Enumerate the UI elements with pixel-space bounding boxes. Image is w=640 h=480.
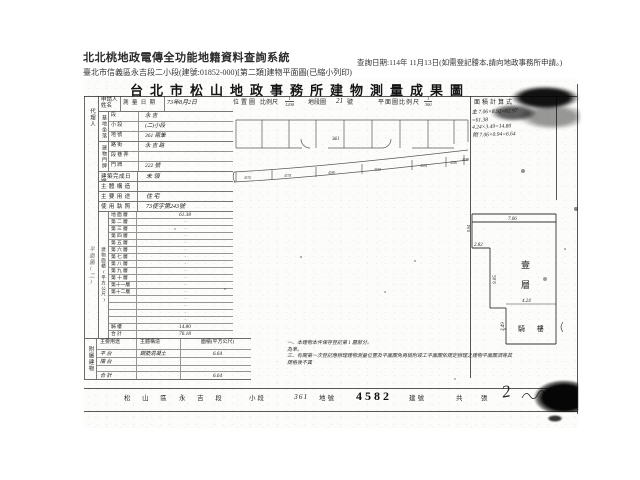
annex-use-value: 平 台 <box>97 350 137 357</box>
note-line: 規格後不異 <box>287 361 527 368</box>
floor-row: 第 二 層 · <box>109 219 233 226</box>
info-row-label: 主 要 用 途 <box>99 192 138 201</box>
floor-area-value: · <box>137 289 233 295</box>
map-building-no: 4586 <box>450 161 457 165</box>
floor-area-value: · <box>137 247 233 253</box>
info-row-label: 使 用 執 照 <box>99 202 138 211</box>
sheet-unit: 號 <box>347 97 353 106</box>
map-building-no: 4576 <box>244 176 251 180</box>
floor-area-value: · <box>137 275 233 281</box>
plan-dim-height: 9.05 <box>493 275 498 284</box>
map-building-no: 4584 <box>420 164 427 168</box>
address-row-value <box>139 152 233 161</box>
annex-row: 合 計 6.64 <box>97 372 251 379</box>
floor-row: 地 面 層 61.38 <box>109 212 233 219</box>
floor-row: · <box>109 303 233 310</box>
floor-area-value: · <box>137 233 233 239</box>
floor-label <box>109 303 137 309</box>
annex-area-value <box>181 358 251 365</box>
floor-label: 第 六 層 <box>109 247 137 253</box>
info-row-label: 主 體 構 造 <box>99 182 138 191</box>
site-row-label: 地 號 <box>109 132 139 141</box>
scan-smudge-bottom-right <box>534 380 578 412</box>
floor-area-value: · <box>137 268 233 274</box>
plan-scale-fraction: 1 300 <box>424 96 432 107</box>
plan-floor-label-1: 壹 <box>521 259 530 270</box>
annex-structure-header: 主體構造 <box>137 339 181 349</box>
site-rows: 段 永 吉 小 段 (二)小段 地 號 361 兩筆 <box>109 112 233 141</box>
address-group-label: 建物門牌 <box>99 142 109 171</box>
address-row-label: 路 街 <box>109 142 139 151</box>
floor-row: 第 四 層 · <box>109 233 233 240</box>
floor-row: 第 十 層 · <box>109 275 233 282</box>
plan-scale-label: 平面圖比例尺 <box>378 97 420 106</box>
annex-use-header: 主要用途 <box>97 339 137 349</box>
annex-header-row: 主要用途 主體構造 面積(平方公尺) <box>97 339 251 350</box>
floor-area-value: · <box>137 310 233 316</box>
document-subtitle: 臺北市信義區永吉段二小段(建號:01852-000)[第二類]建物平面圖(已縮小… <box>83 67 352 78</box>
site-row-value: 永 吉 <box>139 112 233 121</box>
map-parcel-number: 361 <box>332 137 340 142</box>
info-row-value <box>138 182 233 191</box>
floor-area-value: · <box>137 303 233 309</box>
footer-subsection-label: 小段 <box>249 392 266 402</box>
plan-scale-denominator: 300 <box>425 102 432 107</box>
floor-row: 第 五 層 · <box>109 240 233 247</box>
annex-structure-value <box>137 358 181 365</box>
applicant-label: 申請人姓名 <box>99 96 121 111</box>
survey-date-label: 測 量 日 期 <box>121 96 165 111</box>
footer-count-label: 共 張 <box>456 392 494 402</box>
address-row-value: 永 吉 路 <box>139 142 233 151</box>
note-line: 三、有關第一次登記應辦理建物測量位置及平面圖免再檢附竣工平面圖依規定辦理之建物平… <box>287 354 527 361</box>
floor-row: 第 八 層 · <box>109 261 233 268</box>
floor-label <box>109 317 137 323</box>
floor-row: 第 三 層 · <box>109 226 233 233</box>
survey-date-value: 73年8月2日 <box>165 96 233 111</box>
site-row: 段 永 吉 <box>109 112 233 122</box>
system-title: 北北桃地政電傳全功能地籍資料查詢系統 <box>83 49 290 65</box>
sheet-label: 地段圖 <box>308 97 326 106</box>
scanned-survey-document: 台北市松山地政事務所建物測量成果圖 代理人 平面圖(二) 申請人姓名 測 量 日… <box>84 78 578 428</box>
address-row: 段 巷 弄 <box>109 152 233 162</box>
info-row-value: 73使字第243號 <box>138 202 233 211</box>
footer-district: 松 山 區 <box>124 392 172 402</box>
annex-structure-value <box>137 372 181 379</box>
floor-label: 第十二層 <box>109 289 137 295</box>
floor-area-group: 建物面積(平方公尺) 地 面 層 61.38 第 二 層 · <box>99 212 233 338</box>
plan-dim-arcade-height: 3.49 <box>501 322 506 331</box>
floor-label: 合 計 <box>109 331 137 338</box>
floor-area-value: · <box>137 261 233 267</box>
annex-label: 附屬建物 <box>85 339 97 379</box>
floor-label <box>109 310 137 316</box>
floor-label: 第 三 層 <box>109 226 137 232</box>
annex-use-value: 合 計 <box>97 372 137 379</box>
floor-area-rows: 地 面 層 61.38 第 二 層 · 第 三 層 · <box>109 212 233 338</box>
form-left-margin: 代理人 平面圖(二) <box>85 96 99 338</box>
land-registry-viewer-page: { "header": { "system_title": "北北桃地政電傳全功… <box>0 0 640 480</box>
site-row-label: 段 <box>109 112 139 121</box>
site-row: 地 號 361 兩筆 <box>109 132 233 141</box>
floor-row: 第十一層 · <box>109 282 233 289</box>
floor-row: · <box>109 310 233 317</box>
annex-area-value: 6.64 <box>181 372 251 379</box>
map-building-no: 4582 <box>374 168 381 172</box>
address-row: 門 牌 222 號 <box>109 162 233 171</box>
site-group-label: 基地坐落 <box>99 112 109 141</box>
info-row: 建築完成日期 未 領 <box>99 172 233 182</box>
floor-row: · <box>109 296 233 303</box>
info-row-label: 建築完成日期 <box>99 172 138 181</box>
floor-area-value: 61.38 <box>137 212 233 218</box>
location-map-drawing: 361 4576 4578 4580 4582 4584 4586 4588 <box>232 114 470 254</box>
plan-floor-label-2: 層 <box>521 280 530 290</box>
floor-row: 第 七 層 · <box>109 254 233 261</box>
map-building-no: 4588 <box>462 158 469 162</box>
agent-label: 代理人 <box>88 108 96 128</box>
address-row-label: 門 牌 <box>109 162 139 171</box>
floor-row: 第十二層 · <box>109 289 233 296</box>
annex-area-header: 面積(平方公尺) <box>181 339 251 349</box>
floor-label <box>109 296 137 302</box>
annex-rows: 平 台 鋼筋混凝土 6.64 陽 台 <box>97 350 251 379</box>
scan-smudge-small <box>546 414 564 423</box>
plan-dim-arcade-width: 4.24 <box>522 299 531 304</box>
site-location-group: 基地坐落 段 永 吉 小 段 (二)小段 <box>99 112 233 142</box>
scan-noise-specks <box>84 78 86 80</box>
floor-area-value: 14.80 <box>137 324 233 330</box>
address-row-value: 222 號 <box>139 162 233 171</box>
annex-building-table: 附屬建物 主要用途 主體構造 面積(平方公尺) 平 台 鋼筋混凝土 6.64 陽… <box>84 338 251 380</box>
location-map-label: 位置圖 <box>233 97 257 106</box>
footer-building-label: 建號 <box>409 392 426 402</box>
annex-use-value <box>97 366 137 371</box>
floor-label: 第 八 層 <box>109 261 137 267</box>
annex-area-value <box>181 366 251 371</box>
address-rows: 路 街 永 吉 路 段 巷 弄 門 牌 222 號 <box>109 142 233 171</box>
floor-label: 第 七 層 <box>109 254 137 260</box>
handwritten-page-count: 2 <box>500 381 512 402</box>
floor-area-value: · <box>137 240 233 246</box>
info-row-value: 未 領 <box>138 172 233 181</box>
footer-bottom-line <box>84 411 577 412</box>
query-date: 查詢日期:114年 11月13日(如需登記謄本,請向地政事務所申請。) <box>357 57 562 68</box>
applicant-row: 申請人姓名 測 量 日 期 73年8月2日 <box>99 96 233 112</box>
address-group: 建物門牌 路 街 永 吉 路 段 巷 弄 <box>99 142 233 172</box>
handwritten-side-note: 平面圖(二) <box>87 246 95 286</box>
floor-area-value: · <box>137 254 233 260</box>
footer-parcel-number: 361 <box>294 392 308 401</box>
floor-row: 騎 樓 14.80 <box>109 324 233 331</box>
site-row: 小 段 (二)小段 <box>109 122 233 132</box>
annex-structure-value: 鋼筋混凝土 <box>137 350 181 357</box>
address-row-label: 段 巷 弄 <box>109 152 139 161</box>
sheet-number: 21 <box>336 97 343 105</box>
site-row-value: (二)小段 <box>139 122 233 131</box>
floor-label: 第 十 層 <box>109 275 137 281</box>
floor-area-value: · <box>137 317 233 323</box>
scale-denominator: 1200 <box>285 102 294 107</box>
map-building-no: 4578 <box>284 174 291 178</box>
plan-dim-top: 7.06 <box>508 217 517 222</box>
map-building-no: 4580 <box>328 171 335 175</box>
annex-area-value: 6.64 <box>181 350 251 357</box>
floor-area-value: · <box>137 226 233 232</box>
address-row: 路 街 永 吉 路 <box>109 142 233 152</box>
floor-area-value: 76.18 <box>137 331 233 338</box>
info-row: 使 用 執 照 73使字第243號 <box>99 202 233 212</box>
building-info-form: 代理人 平面圖(二) 申請人姓名 測 量 日 期 73年8月2日 基地坐落 段 … <box>84 96 233 338</box>
footer-building-number: 4582 <box>356 389 392 404</box>
info-row: 主 體 構 造 <box>99 182 233 192</box>
annex-use-value: 陽 台 <box>97 358 137 365</box>
scan-smudge-top-right <box>488 82 580 138</box>
site-row-value: 361 兩筆 <box>139 132 233 141</box>
annex-structure-value <box>137 366 181 371</box>
floor-row: 合 計 76.18 <box>109 331 233 338</box>
floor-label: 第 九 層 <box>109 268 137 274</box>
floor-area-value: · <box>137 296 233 302</box>
floor-row: 第 九 層 · <box>109 268 233 275</box>
plan-dim-notch: 0.94 <box>466 225 471 232</box>
floor-area-group-label: 建物面積(平方公尺) <box>99 212 109 338</box>
footer-section: 永 吉 段 <box>179 392 227 402</box>
floor-label: 騎 樓 <box>109 324 137 330</box>
unit-floor-plan-drawing: 7.06 0.94 2.82 9.05 4.24 3.49 壹 層 騎 樓 <box>466 204 570 354</box>
scale-label: 比例尺 <box>260 97 278 106</box>
floor-label: 地 面 層 <box>109 212 137 218</box>
location-scale-fraction: 1 1200 <box>285 96 294 107</box>
info-row: 主 要 用 途 住 宅 <box>99 192 233 202</box>
plan-dim-step: 2.82 <box>474 243 483 248</box>
annex-row: 平 台 鋼筋混凝土 6.64 <box>97 350 251 358</box>
building-info-rows: 建築完成日期 未 領 主 體 構 造 主 要 用 途 住 宅 使 用 <box>99 172 233 212</box>
floor-row: 第 六 層 · <box>109 247 233 254</box>
floor-area-value: · <box>137 282 233 288</box>
floor-label: 第十一層 <box>109 282 137 288</box>
info-row-value: 住 宅 <box>138 192 233 201</box>
floor-label: 第 五 層 <box>109 240 137 246</box>
plan-arcade-label: 騎 樓 <box>518 324 549 333</box>
floor-row: · <box>109 317 233 324</box>
floor-area-value: · <box>137 219 233 225</box>
floor-label: 第 二 層 <box>109 219 137 225</box>
site-row-label: 小 段 <box>109 122 139 131</box>
footer-parcel-label: 地號 <box>319 392 336 402</box>
annex-row: 陽 台 <box>97 358 251 366</box>
floor-label: 第 四 層 <box>109 233 137 239</box>
